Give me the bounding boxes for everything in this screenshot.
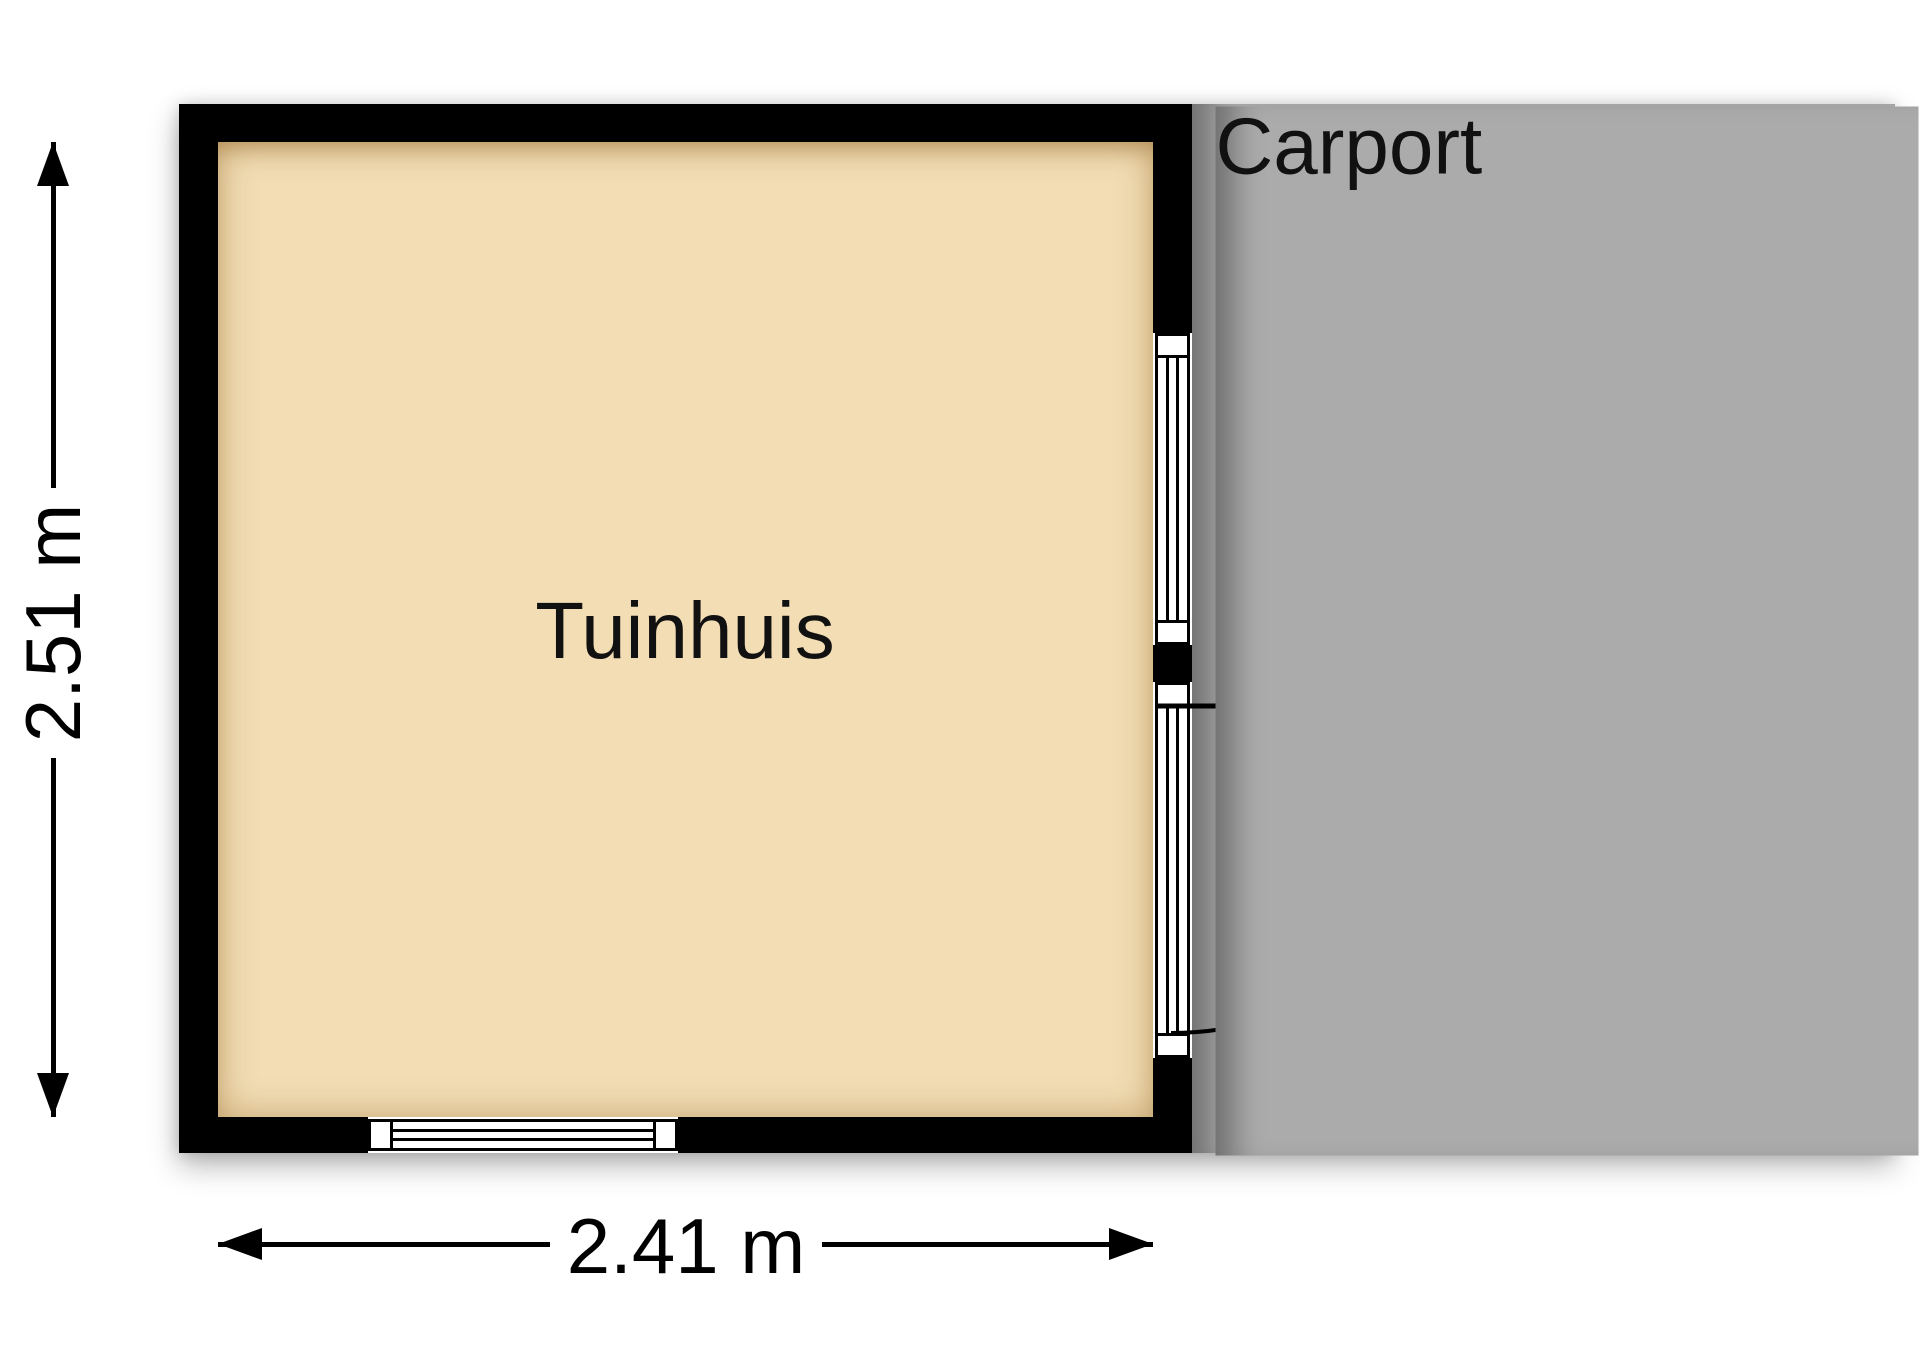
bottom-wall-window [368,1117,678,1153]
door-opening [1153,682,1192,1058]
dimension-line [822,1242,1153,1247]
window-mullion [393,1138,653,1141]
dimension-label-width: 2.41 m [567,1207,805,1285]
window-mullion [393,1129,653,1132]
arrow-up-icon [37,142,69,186]
arrow-right-icon [1109,1228,1153,1260]
door-panel [1158,707,1187,1033]
floorplan: Tuinhuis Carport [179,104,1895,1153]
window-cap-right [653,1122,675,1148]
floorplan-canvas: Tuinhuis Carport 2.51 m 2.41 m [0,0,1920,1358]
arrow-left-icon [218,1228,262,1260]
dimension-line [51,758,56,1117]
window-mullion [1176,358,1179,620]
window-cap-bottom [1158,620,1187,642]
door-panel-line [1176,707,1179,1033]
window-glass [1158,358,1187,620]
window-frame [368,1119,678,1151]
room-label-carport: Carport [1216,107,1919,1156]
window-cap-top [1158,336,1187,358]
window-mullion [1166,358,1169,620]
dimension-line [218,1242,550,1247]
right-wall-window [1153,333,1192,645]
dimension-line [51,142,56,488]
window-frame [1155,333,1190,645]
room-label-tuinhuis: Tuinhuis [535,591,834,671]
dimension-label-height: 2.51 m [14,504,92,742]
window-glass [393,1122,653,1148]
window-cap-left [371,1122,393,1148]
arrow-down-icon [37,1073,69,1117]
door-jamb-top [1158,685,1187,707]
door-jamb-bottom [1158,1033,1187,1055]
door-panel-line [1166,707,1169,1033]
door-frame [1155,682,1190,1058]
